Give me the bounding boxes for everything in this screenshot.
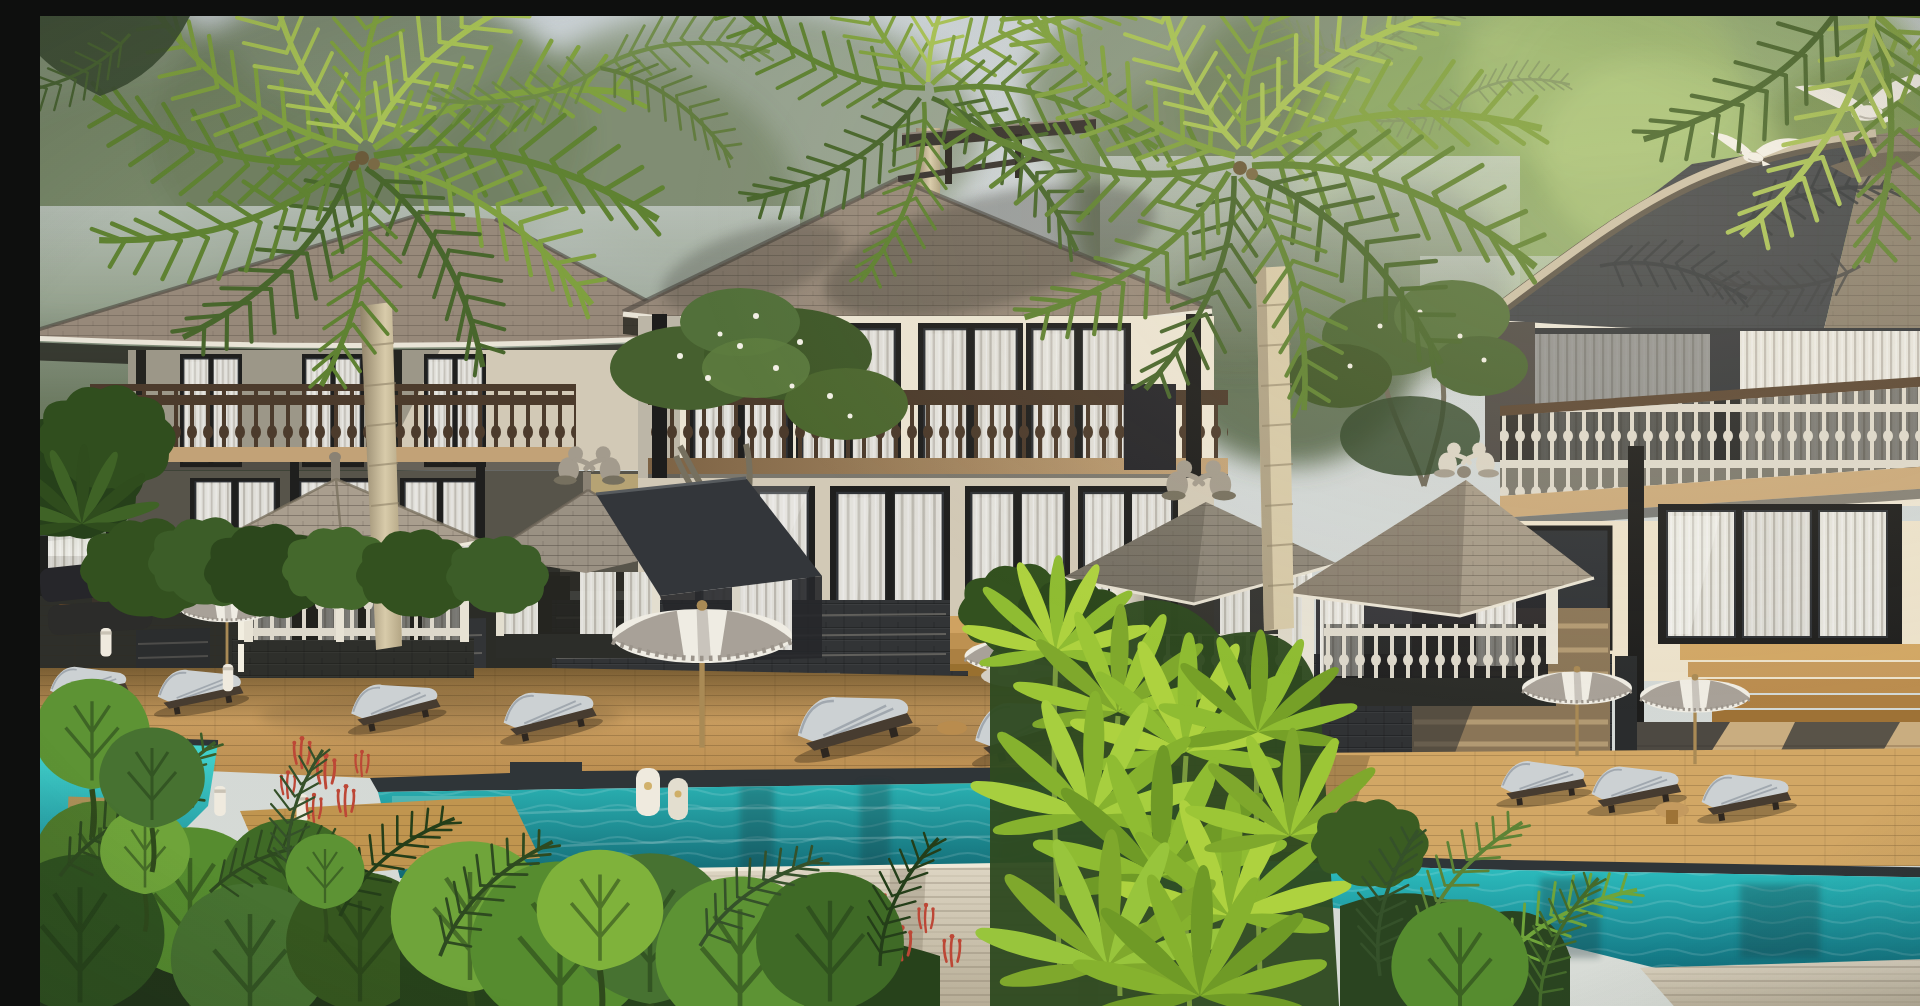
vignette	[40, 16, 1920, 1006]
resort-rendering: 3D architectural rendering of a tropical…	[40, 16, 1920, 1006]
